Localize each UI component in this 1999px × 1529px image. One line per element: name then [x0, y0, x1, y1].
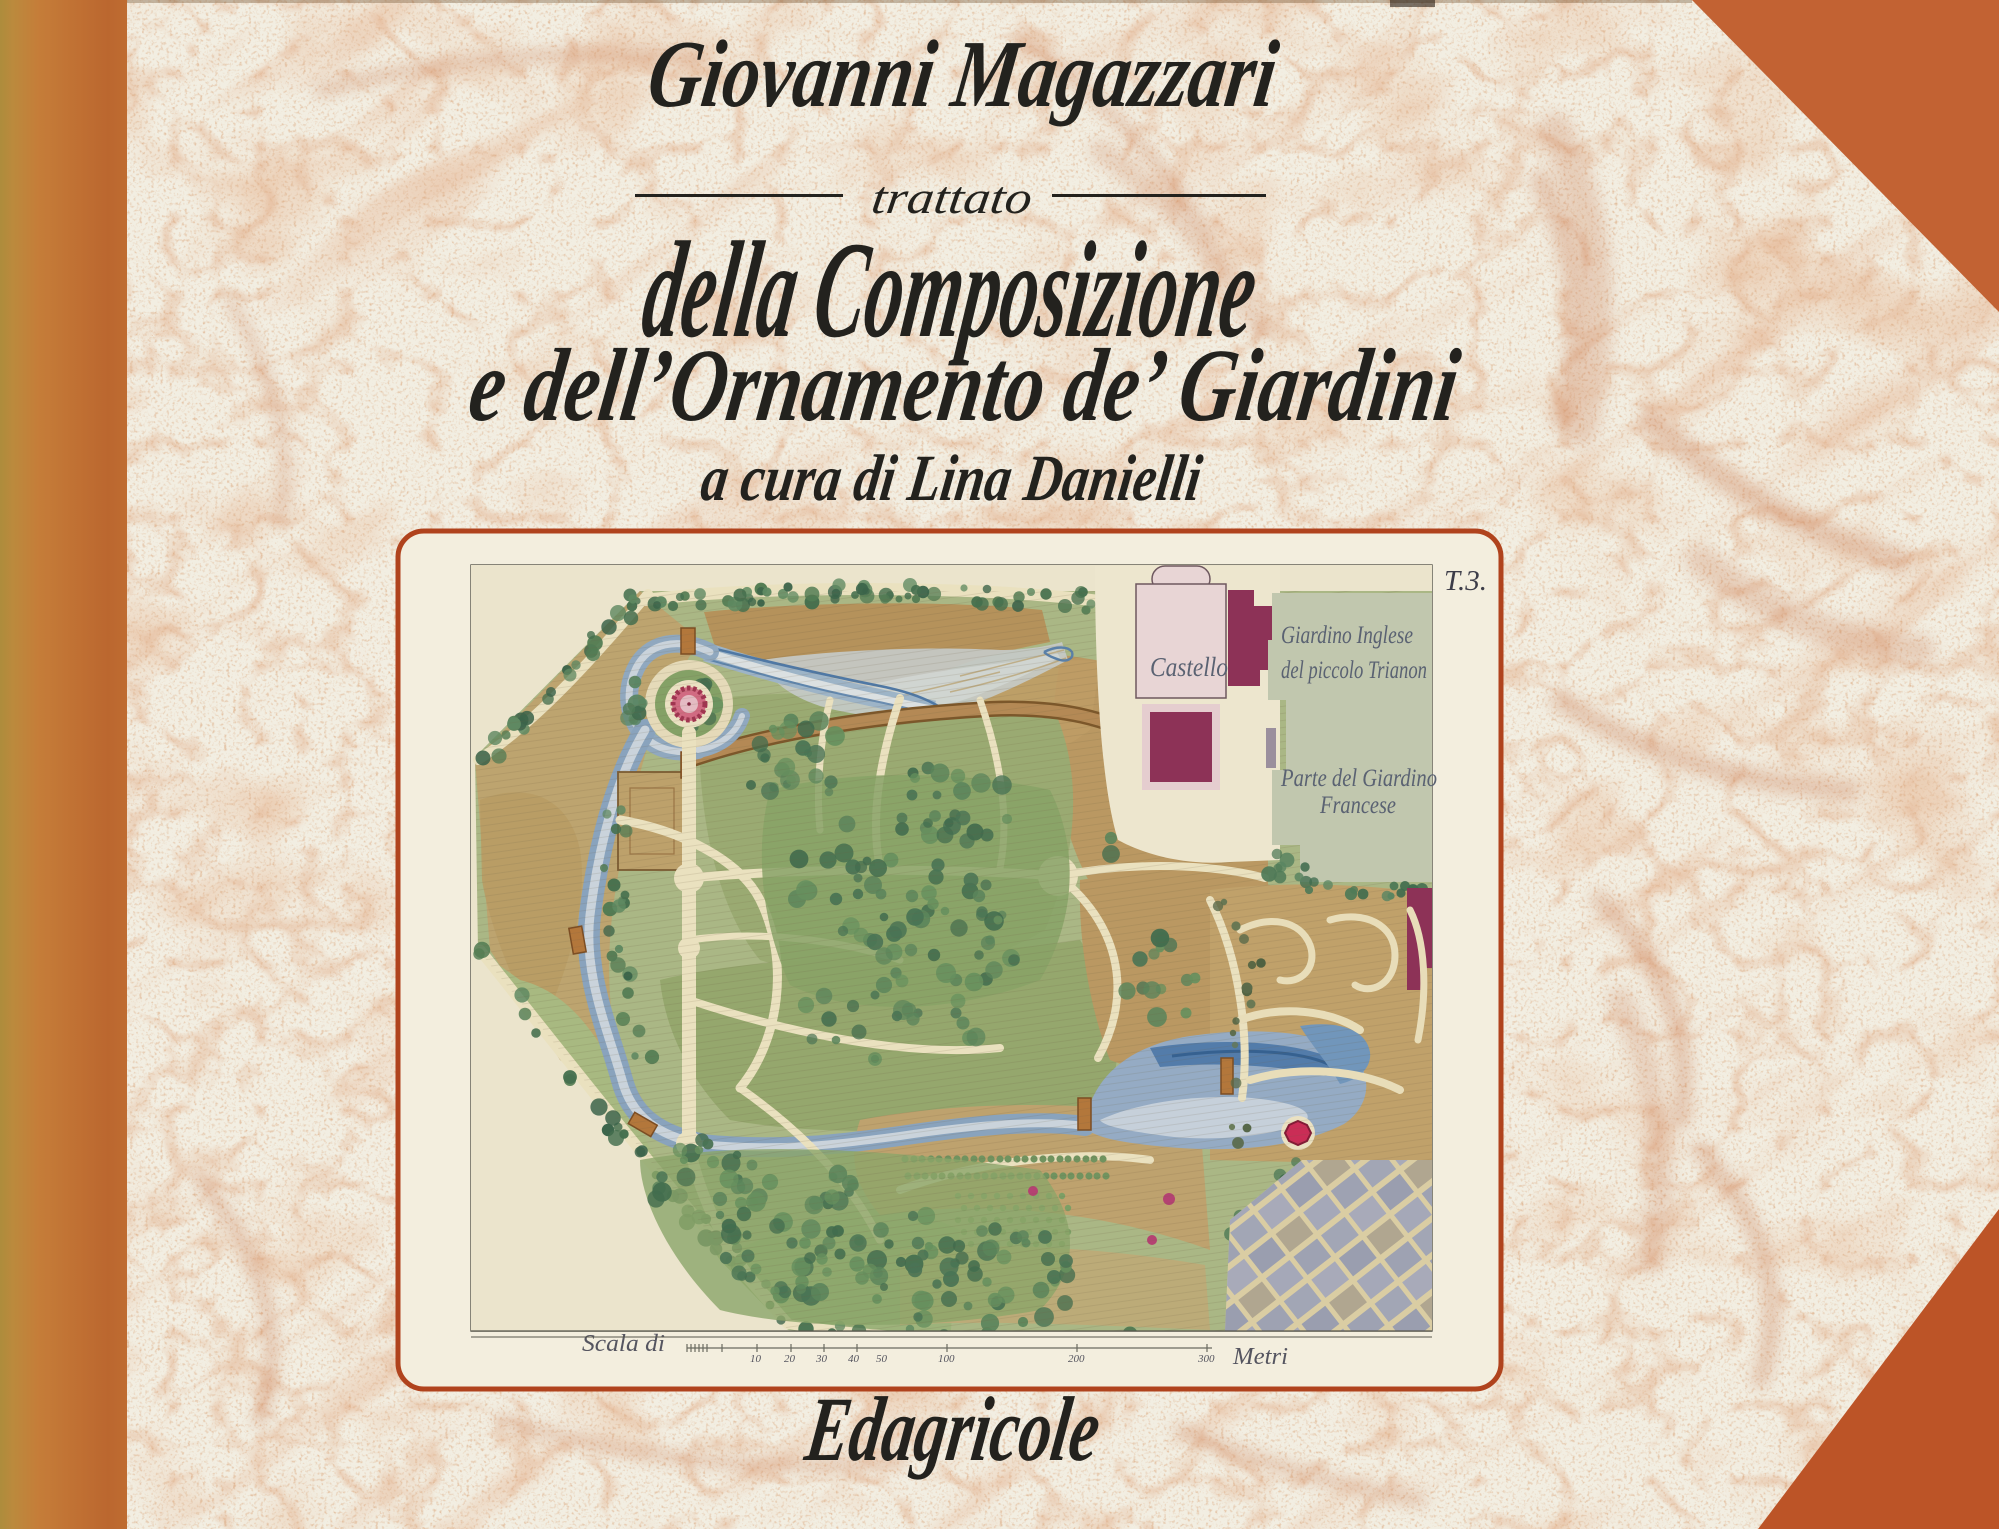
- svg-text:40: 40: [848, 1353, 860, 1365]
- svg-text:T.3.: T.3.: [1444, 565, 1487, 597]
- svg-text:100: 100: [938, 1353, 955, 1365]
- svg-text:Edagricole: Edagricole: [800, 1378, 1107, 1480]
- svg-text:50: 50: [876, 1353, 888, 1365]
- svg-text:Giardino Inglese: Giardino Inglese: [1281, 622, 1413, 649]
- svg-text:200: 200: [1068, 1353, 1085, 1365]
- svg-text:del piccolo Trianon: del piccolo Trianon: [1281, 657, 1427, 684]
- svg-text:Giovanni Magazzari: Giovanni Magazzari: [642, 20, 1284, 126]
- svg-text:e dell’Ornamento de’ Giardini: e dell’Ornamento de’ Giardini: [463, 327, 1466, 442]
- svg-text:30: 30: [815, 1353, 828, 1365]
- svg-text:300: 300: [1197, 1353, 1215, 1365]
- svg-text:10: 10: [750, 1353, 762, 1365]
- svg-text:Parte del Giardino: Parte del Giardino: [1280, 765, 1437, 792]
- svg-text:Metri: Metri: [1232, 1344, 1288, 1370]
- svg-text:Francese: Francese: [1319, 792, 1396, 819]
- svg-text:20: 20: [784, 1353, 796, 1365]
- svg-text:Castello: Castello: [1150, 652, 1228, 682]
- svg-text:Scala di: Scala di: [582, 1331, 665, 1357]
- svg-text:a cura di Lina Danielli: a cura di Lina Danielli: [697, 442, 1207, 515]
